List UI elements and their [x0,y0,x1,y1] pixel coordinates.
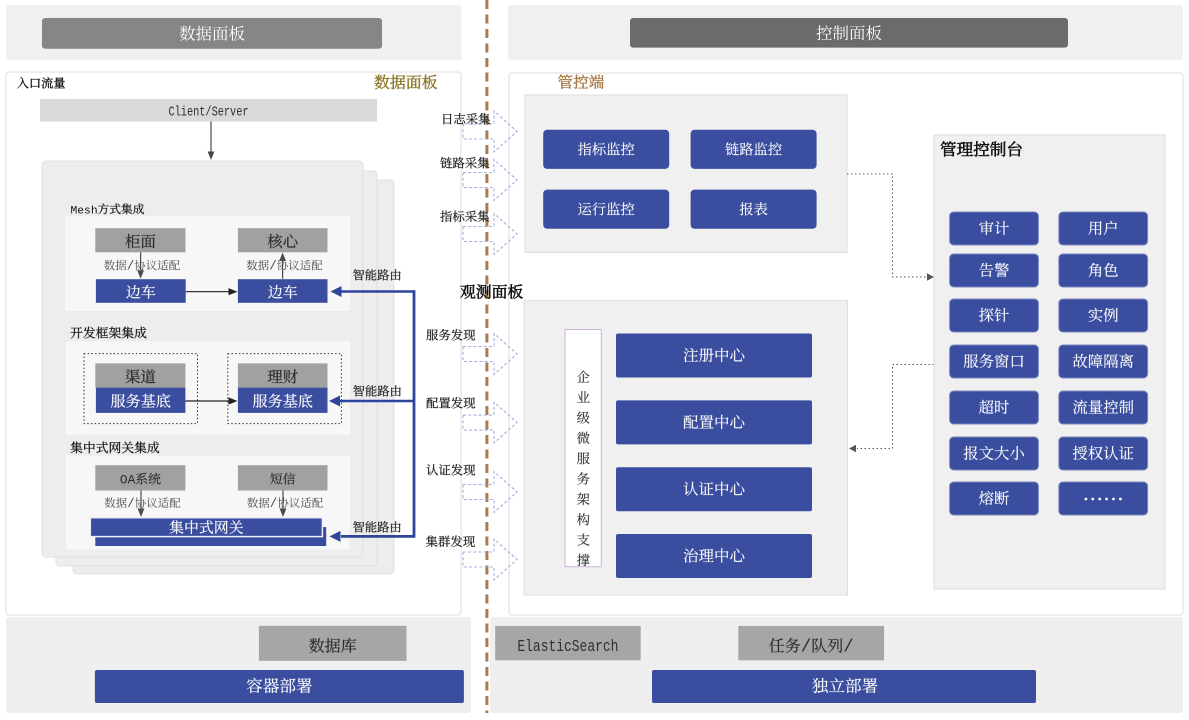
svg-text:/: / [843,638,854,658]
svg-text:ElasticSearch: ElasticSearch [517,638,618,657]
svg-text:/: / [801,638,812,658]
svg-text:Client/Server: Client/Server [169,104,249,120]
svg-text:/: / [270,497,278,511]
svg-text:/: / [269,260,277,274]
svg-text:Mesh: Mesh [71,205,98,217]
svg-text:/: / [127,260,135,274]
svg-text:/: / [127,497,135,511]
svg-text:OA: OA [120,473,136,488]
